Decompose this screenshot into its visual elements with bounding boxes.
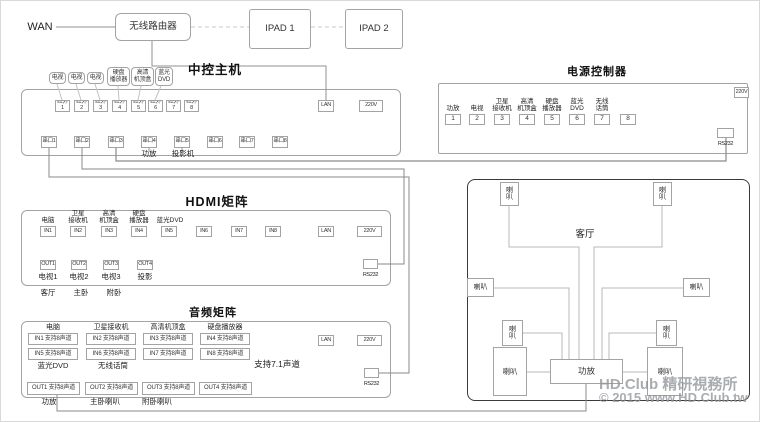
watermark-line2: © 2015 www.HD.Club.tw [599, 390, 748, 405]
audio-out4-port: OUT4 支持8声道 [199, 382, 252, 395]
power-outlet-6: 6 [569, 114, 585, 125]
hdmi-in8-port: IN8 [265, 226, 281, 237]
audio-in3-label: 高清机顶盒 [146, 323, 190, 332]
hdmi-lan-port: LAN [318, 226, 334, 237]
hdmi-in5-label: 蓝光DVD [153, 203, 187, 224]
audio-in6-port: IN6 支持8声道 [86, 348, 136, 360]
device-pill-tv1: 电视 [49, 72, 66, 84]
serial-port-3: 串口3 [108, 136, 124, 148]
hdmi-in5-port: IN5 [161, 226, 177, 237]
device-pill-settop-box: 高清 机顶盒 [131, 67, 154, 86]
audio-out2-label: 主卧喇叭 [85, 397, 125, 407]
audio-in8-port: IN8 支持8声道 [200, 348, 250, 360]
wire-speaker-ll [523, 333, 562, 359]
audio-in1-label: 电脑 [39, 323, 67, 332]
wire-speaker-tr [594, 206, 662, 359]
serial-port-8: 串口8 [272, 136, 288, 148]
audio-in5-device-label: 蓝光DVD [35, 362, 71, 371]
wire-tv1-ir1 [57, 84, 62, 100]
device-pill-tv3: 电视 [87, 72, 104, 84]
hdmi-out2-port: OUT2 [71, 260, 87, 270]
audio-in2-port: IN2 支持8声道 [86, 333, 136, 345]
speaker-mid-right: 喇叭 [683, 278, 710, 297]
hdmi-out4-device: 投影 [135, 272, 155, 282]
hdmi-in3-label: 高清 机顶盒 [95, 203, 123, 224]
speaker-lower-right: 喇 叭 [656, 320, 677, 346]
power-controller-220v: 220V [734, 87, 749, 98]
audio-220v-port: 220V [357, 335, 382, 346]
hdmi-in4-port: IN4 [131, 226, 147, 237]
serial-port-4: 串口4 [141, 136, 157, 148]
ipad2: IPAD 2 [345, 9, 403, 49]
hdmi-out4-port: OUT4 [137, 260, 153, 270]
hdmi-out3-device: 电视3 [97, 272, 125, 282]
audio-out3-label: 附卧喇叭 [137, 397, 177, 407]
audio-in4-port: IN4 支持8声道 [200, 333, 250, 345]
hdmi-out3-room: 附卧 [105, 288, 123, 298]
ir-port-8: 红外8 [184, 100, 199, 112]
hdmi-matrix-title: HDMI矩阵 [179, 195, 255, 210]
audio-rs232-port [364, 368, 379, 378]
central-lan-port: LAN [318, 100, 334, 112]
device-pill-tv2: 电视 [68, 72, 85, 84]
audio-out1-port: OUT1 支持8声道 [27, 382, 80, 395]
ir-port-4: 红外4 [112, 100, 127, 112]
hdmi-in2-label: 卫星 接收机 [64, 203, 92, 224]
hdmi-out1-device: 电视1 [34, 272, 62, 282]
hdmi-in1-port: IN1 [40, 226, 56, 237]
hdmi-in2-port: IN2 [70, 226, 86, 237]
power-controller-rs232-port [717, 128, 734, 138]
serial4-amp-label: 功放 [138, 149, 160, 159]
ir-port-2: 红外2 [74, 100, 89, 112]
audio-in4-label: 硬盘播放器 [203, 323, 247, 332]
wireless-router: 无线路由器 [115, 13, 191, 41]
wan-label: WAN [23, 19, 57, 35]
hdmi-out1-room: 客厅 [39, 288, 57, 298]
ipad1: IPAD 1 [249, 9, 311, 49]
serial5-projector-label: 投影机 [169, 149, 197, 159]
speaker-lower-left: 喇 叭 [502, 320, 523, 346]
wire-tv3-ir3 [95, 84, 100, 100]
power-outlet-8: 8 [620, 114, 636, 125]
power-outlet-5: 5 [544, 114, 560, 125]
wire-bd-ir6 [155, 86, 161, 100]
audio-in3-port: IN3 支持8声道 [143, 333, 193, 345]
audio-71-note: 支持7.1声道 [249, 359, 305, 370]
serial-port-1: 串口1 [41, 136, 57, 148]
hdmi-220v-port: 220V [357, 226, 382, 237]
hdmi-out2-room: 主卧 [72, 288, 90, 298]
power-controller-title: 电源控制器 [557, 65, 637, 80]
audio-rs232-label: RS232 [361, 380, 382, 388]
wire-tv2-ir2 [76, 84, 81, 100]
hdmi-in3-port: IN3 [101, 226, 117, 237]
audio-matrix-title: 音频矩阵 [182, 307, 244, 320]
speaker-mid-left: 喇叭 [467, 278, 494, 297]
device-pill-hdd-player: 硬盘 播放器 [107, 67, 130, 86]
speaker-floor-left: 喇叭 [493, 347, 527, 396]
audio-in2-label: 卫星接收机 [89, 323, 133, 332]
serial-port-7: 串口7 [239, 136, 255, 148]
power-outlet-1: 1 [445, 114, 461, 125]
hdmi-in7-port: IN7 [231, 226, 247, 237]
power-outlet-4: 4 [519, 114, 535, 125]
wire-stb-ir5 [138, 86, 141, 100]
central-power-port: 220V [359, 100, 383, 112]
serial-port-6: 串口6 [207, 136, 223, 148]
hdmi-in6-port: IN6 [196, 226, 212, 237]
audio-in7-port: IN7 支持8声道 [143, 348, 193, 360]
hdmi-rs232-label: RS232 [360, 271, 381, 279]
serial-port-2: 串口2 [74, 136, 90, 148]
audio-out1-label: 功放 [37, 397, 61, 407]
audio-in5-port: IN5 支持8声道 [28, 348, 78, 360]
hdmi-out2-device: 电视2 [65, 272, 93, 282]
speaker-top-right: 喇 叭 [653, 182, 672, 206]
hdmi-rs232-port [363, 259, 378, 269]
central-host-title: 中控主机 [169, 63, 261, 79]
power-outlet-7: 7 [594, 114, 610, 125]
audio-in6-device-label: 无线话筒 [93, 362, 133, 371]
power-ch7-label: 无线 话筒 [586, 91, 618, 112]
hdmi-in1-label: 电脑 [34, 203, 62, 224]
av-system-diagram: WAN 无线路由器 IPAD 1 IPAD 2 中控主机 电视 电视 电视 硬盘… [0, 0, 760, 422]
power-controller-rs232-label: RS232 [714, 140, 737, 148]
serial-port-5: 串口5 [174, 136, 190, 148]
wire-hdd-ir4 [118, 86, 119, 100]
audio-in1-port: IN1 支持8声道 [28, 333, 78, 345]
ir-port-6: 红外6 [148, 100, 163, 112]
ir-port-7: 红外7 [166, 100, 181, 112]
speaker-top-left: 喇 叭 [500, 182, 519, 206]
device-pill-bluray: 蓝光 DVD [155, 67, 173, 86]
living-room-title: 客厅 [571, 229, 599, 241]
audio-lan-port: LAN [318, 335, 334, 346]
power-outlet-3: 3 [494, 114, 510, 125]
hdmi-out3-port: OUT3 [103, 260, 119, 270]
ir-port-5: 红外5 [131, 100, 146, 112]
ir-port-1: 红外1 [55, 100, 70, 112]
audio-out2-port: OUT2 支持8声道 [85, 382, 138, 395]
ir-port-3: 红外3 [93, 100, 108, 112]
hdmi-out1-port: OUT1 [40, 260, 56, 270]
power-outlet-2: 2 [469, 114, 485, 125]
audio-out3-port: OUT3 支持8声道 [142, 382, 195, 395]
hdmi-in4-label: 硬盘 播放器 [125, 203, 153, 224]
